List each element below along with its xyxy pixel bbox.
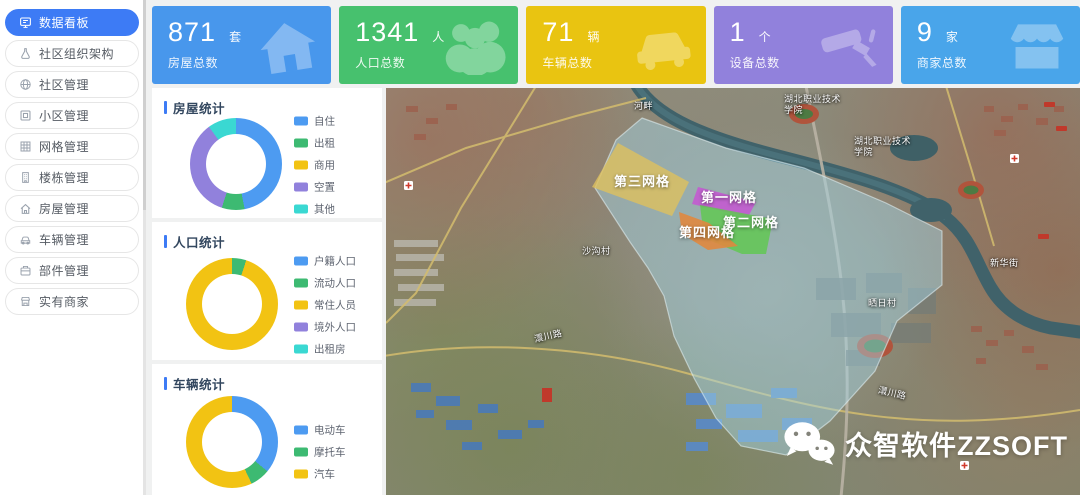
chart-title: 房屋统计 — [173, 98, 225, 117]
legend-label: 出租 — [314, 136, 335, 151]
residential-icon — [19, 109, 32, 122]
stat-cards-row: 871套 房屋总数 1341人 人口总数 71辆 车辆总数 1个 设备总数 9家… — [152, 6, 1080, 84]
legend-item[interactable]: 汽车 — [294, 467, 346, 482]
population-chart-legend: 户籍人口 流动人口 常住人员 境外人口 出租房 — [294, 254, 356, 357]
legend-swatch — [294, 345, 308, 354]
legend-label: 其他 — [314, 202, 335, 217]
stat-card-housing: 871套 房屋总数 — [152, 6, 331, 84]
stat-value: 1341 — [355, 17, 419, 48]
legend-label: 出租房 — [314, 342, 346, 357]
sidebar-item-dashboard[interactable]: 数据看板 — [5, 9, 139, 36]
sidebar-item-house[interactable]: 房屋管理 — [5, 195, 139, 222]
stat-value: 871 — [168, 17, 216, 48]
sidebar-item-label: 社区组织架构 — [39, 45, 114, 62]
sidebar-item-building[interactable]: 楼栋管理 — [5, 164, 139, 191]
title-accent-bar — [164, 235, 167, 248]
legend-swatch — [294, 117, 308, 126]
sidebar-item-label: 网格管理 — [39, 138, 89, 155]
legend-item[interactable]: 空置 — [294, 180, 335, 195]
sidebar-item-component[interactable]: 部件管理 — [5, 257, 139, 284]
stat-unit: 个 — [759, 28, 771, 45]
population-donut-chart[interactable] — [186, 258, 278, 350]
legend-label: 自住 — [314, 114, 335, 129]
legend-swatch — [294, 257, 308, 266]
shop-icon — [1006, 19, 1068, 75]
stat-value: 71 — [542, 17, 574, 48]
sidebar-item-label: 数据看板 — [39, 14, 89, 31]
legend-item[interactable]: 其他 — [294, 202, 335, 217]
chart-card-housing-stats: 房屋统计 自住 出租 商用 空置 其他 — [152, 88, 382, 218]
legend-swatch — [294, 139, 308, 148]
map-place-label: 湖北职业技术学院 — [784, 94, 842, 116]
zone-label-grid-1: 第一网格 — [701, 187, 757, 206]
watermark-text: 众智软件ZZSOFT — [845, 424, 1068, 463]
sidebar-item-label: 社区管理 — [39, 76, 89, 93]
component-icon — [19, 264, 32, 277]
community-icon — [19, 78, 32, 91]
chart-panel: 房屋统计 自住 出租 商用 空置 其他 人口统计 户籍人口 流动人口 常住人员 … — [152, 88, 382, 495]
legend-swatch — [294, 183, 308, 192]
sidebar-item-label: 楼栋管理 — [39, 169, 89, 186]
legend-swatch — [294, 470, 308, 479]
sidebar-item-residential[interactable]: 小区管理 — [5, 102, 139, 129]
map-place-label: 晒日村 — [868, 298, 897, 309]
stat-value: 1 — [730, 17, 746, 48]
dashboard-icon — [19, 16, 32, 29]
legend-swatch — [294, 301, 308, 310]
stat-card-population: 1341人 人口总数 — [339, 6, 518, 84]
legend-label: 户籍人口 — [314, 254, 356, 269]
sidebar-item-label: 实有商家 — [39, 293, 89, 310]
stat-unit: 辆 — [587, 28, 599, 45]
vehicle-donut-chart[interactable] — [186, 396, 278, 488]
people-icon — [444, 19, 506, 75]
stat-unit: 套 — [229, 28, 241, 45]
map-place-label: 河畔 — [634, 101, 653, 112]
stat-unit: 人 — [432, 28, 444, 45]
legend-label: 电动车 — [314, 423, 346, 438]
scrollbar-thumb[interactable] — [143, 0, 146, 210]
legend-label: 空置 — [314, 180, 335, 195]
wechat-icon — [782, 420, 836, 467]
legend-label: 境外人口 — [314, 320, 356, 335]
stat-card-merchants: 9家 商家总数 — [901, 6, 1080, 84]
sidebar-item-org-structure[interactable]: 社区组织架构 — [5, 40, 139, 67]
legend-item[interactable]: 境外人口 — [294, 320, 356, 335]
sidebar-item-merchant[interactable]: 实有商家 — [5, 288, 139, 315]
wechat-watermark: 众智软件ZZSOFT — [782, 420, 1068, 467]
legend-label: 流动人口 — [314, 276, 356, 291]
chart-title: 车辆统计 — [173, 374, 225, 393]
legend-item[interactable]: 出租房 — [294, 342, 356, 357]
chart-card-vehicle-stats: 车辆统计 电动车 摩托车 汽车 — [152, 364, 382, 495]
housing-donut-chart[interactable] — [190, 118, 282, 210]
warehouse-roofs — [411, 383, 544, 450]
chart-card-population-stats: 人口统计 户籍人口 流动人口 常住人员 境外人口 出租房 — [152, 222, 382, 360]
sidebar-item-label: 小区管理 — [39, 107, 89, 124]
map-canvas[interactable]: 湖北职业技术学院 湖北职业技术学院 河畔 沙沟村 澴川路 澴川路 晒日村 新华街… — [386, 88, 1080, 495]
sidebar: 数据看板 社区组织架构 社区管理 小区管理 网格管理 楼栋管理 房屋管理 车辆管… — [0, 0, 146, 495]
sidebar-item-community[interactable]: 社区管理 — [5, 71, 139, 98]
legend-item[interactable]: 自住 — [294, 114, 335, 129]
org-icon — [19, 47, 32, 60]
legend-swatch — [294, 426, 308, 435]
legend-label: 摩托车 — [314, 445, 346, 460]
sidebar-item-label: 部件管理 — [39, 262, 89, 279]
zone-label-grid-4: 第四网格 — [679, 222, 735, 241]
sidebar-item-label: 车辆管理 — [39, 231, 89, 248]
map-place-label: 新华街 — [990, 258, 1019, 269]
legend-swatch — [294, 323, 308, 332]
legend-swatch — [294, 205, 308, 214]
legend-item[interactable]: 常住人员 — [294, 298, 356, 313]
zone-label-grid-3: 第三网格 — [614, 171, 670, 190]
grid-icon — [19, 140, 32, 153]
legend-item[interactable]: 电动车 — [294, 423, 346, 438]
chart-title: 人口统计 — [173, 232, 225, 251]
legend-swatch — [294, 279, 308, 288]
building-icon — [19, 171, 32, 184]
red-building — [542, 388, 552, 402]
title-accent-bar — [164, 377, 167, 390]
sidebar-item-label: 房屋管理 — [39, 200, 89, 217]
legend-swatch — [294, 161, 308, 170]
sidebar-item-grid[interactable]: 网格管理 — [5, 133, 139, 160]
map-place-label: 湖北职业技术学院 — [854, 136, 914, 158]
legend-label: 汽车 — [314, 467, 335, 482]
legend-item[interactable]: 摩托车 — [294, 445, 346, 460]
stat-card-vehicles: 71辆 车辆总数 — [526, 6, 705, 84]
house-icon — [257, 19, 319, 75]
stat-card-devices: 1个 设备总数 — [714, 6, 893, 84]
stat-unit: 家 — [946, 28, 958, 45]
housing-chart-legend: 自住 出租 商用 空置 其他 — [294, 114, 335, 217]
title-accent-bar — [164, 101, 167, 114]
merchant-icon — [19, 295, 32, 308]
legend-item[interactable]: 出租 — [294, 136, 335, 151]
vehicle-icon — [19, 233, 32, 246]
legend-label: 商用 — [314, 158, 335, 173]
camera-icon — [819, 19, 881, 75]
vehicle-chart-legend: 电动车 摩托车 汽车 — [294, 423, 346, 482]
car-icon — [632, 19, 694, 75]
legend-label: 常住人员 — [314, 298, 356, 313]
legend-swatch — [294, 448, 308, 457]
legend-item[interactable]: 流动人口 — [294, 276, 356, 291]
house-icon — [19, 202, 32, 215]
legend-item[interactable]: 商用 — [294, 158, 335, 173]
legend-item[interactable]: 户籍人口 — [294, 254, 356, 269]
building-rows — [394, 240, 444, 306]
map-place-label: 沙沟村 — [582, 246, 611, 257]
sidebar-item-vehicle[interactable]: 车辆管理 — [5, 226, 139, 253]
stat-value: 9 — [917, 17, 933, 48]
sidebar-scrollbar[interactable] — [143, 0, 146, 495]
